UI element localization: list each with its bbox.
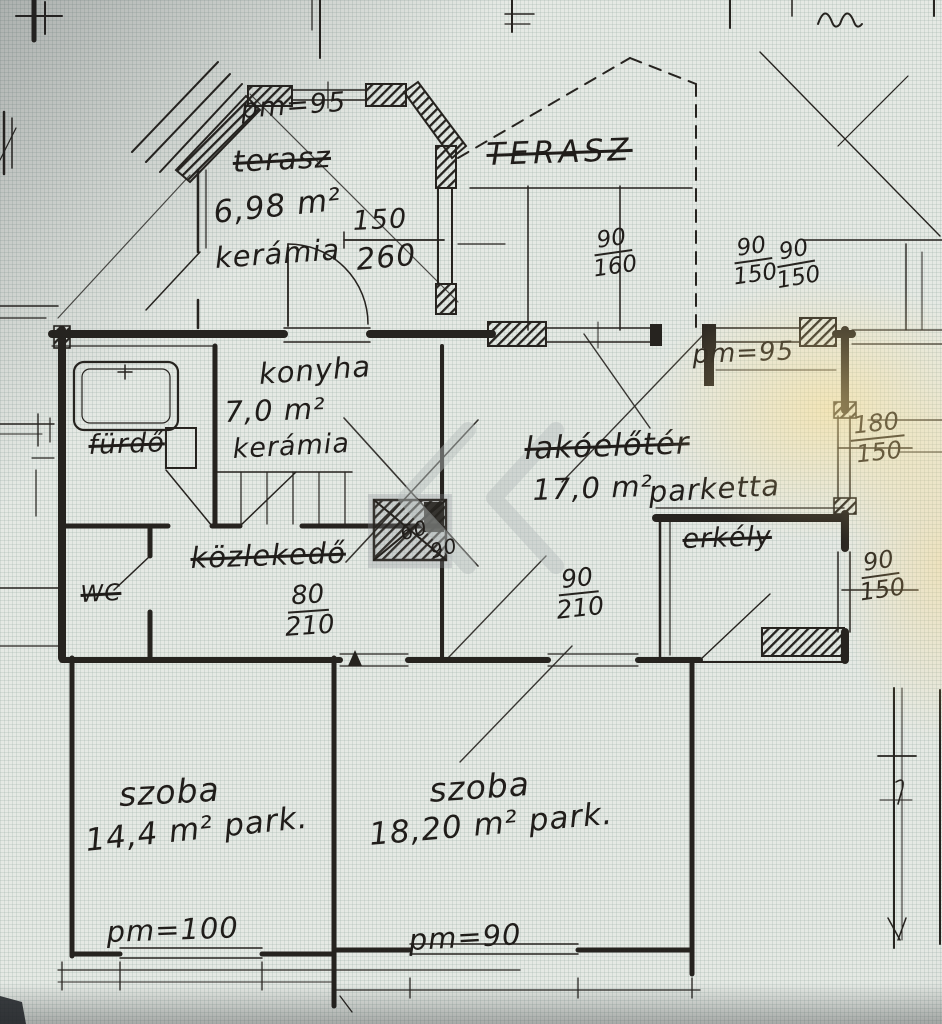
kitchen-floor-label: kerámia (232, 430, 351, 463)
floor-plan-photo: pm=95 terasz 6,98 m² kerámia 150 260 TER… (0, 0, 942, 1024)
balcony-window2-dim: 90 150 (854, 546, 907, 606)
wc-name-label: WC (80, 582, 122, 607)
terrace-outline (458, 58, 696, 330)
balcony-name-label: erkély (682, 523, 772, 553)
terrace-window2-dim: 90 150 (728, 232, 779, 290)
hall-dim-a: 60 (398, 517, 430, 543)
porch-pm-label: pm=95 (240, 89, 347, 123)
porch-opening-height: 260 (355, 241, 418, 276)
hall-door-width: 80 (286, 581, 329, 614)
living-hall-floor-label: parketta (648, 471, 781, 507)
dimension-lines (58, 962, 700, 1012)
living-hall-door-dim: 90 210 (552, 563, 605, 624)
room2-name-label: szoba (428, 767, 531, 807)
terrace-window1-dim: 90 160 (588, 224, 639, 282)
terrace-name-label: TERASZ (486, 135, 633, 171)
terrace-pm-label: pm=95 (692, 338, 795, 368)
room1-pm-label: pm=100 (106, 913, 239, 947)
top-edge-marks (16, 0, 934, 58)
terrace-window1-height: 160 (592, 251, 639, 282)
terrace-lines (458, 186, 692, 330)
porch-floor-label: kerámia (214, 235, 341, 273)
porch-opening-width: 150 (352, 205, 408, 235)
terrace-window2-height: 150 (732, 259, 779, 290)
porch-crossed-name: terasz (232, 143, 332, 178)
living-hall-area-label: 17,0 m² (532, 472, 654, 505)
balcony-window1-dim: 180 150 (848, 408, 907, 468)
kitchen-area-label: 7,0 m² (224, 394, 326, 427)
ink-layer (0, 0, 942, 1024)
balcony-window2-height: 150 (858, 574, 907, 606)
living-hall-name-label: lakóelőtér (524, 428, 690, 465)
hall-dim-b: 90 (428, 535, 460, 561)
room2-pm-label: pm=90 (408, 920, 522, 955)
hall-door-height: 210 (284, 611, 335, 643)
bathroom-name-label: fürdő (88, 429, 165, 459)
balcony-window1-height: 150 (855, 437, 903, 468)
corner-shadow-blotch (0, 996, 26, 1024)
terrace-window3-dim: 90 150 (770, 234, 822, 293)
living-hall-door-height: 210 (555, 592, 605, 624)
kitchen-name-label: konyha (258, 352, 372, 389)
left-edge-marks (0, 112, 62, 646)
plan-drawing (0, 0, 942, 1024)
hall-door-dim: 80 210 (282, 581, 336, 643)
room1-name-label: szoba (118, 773, 220, 811)
hall-name-label: közlekedő (190, 539, 346, 573)
